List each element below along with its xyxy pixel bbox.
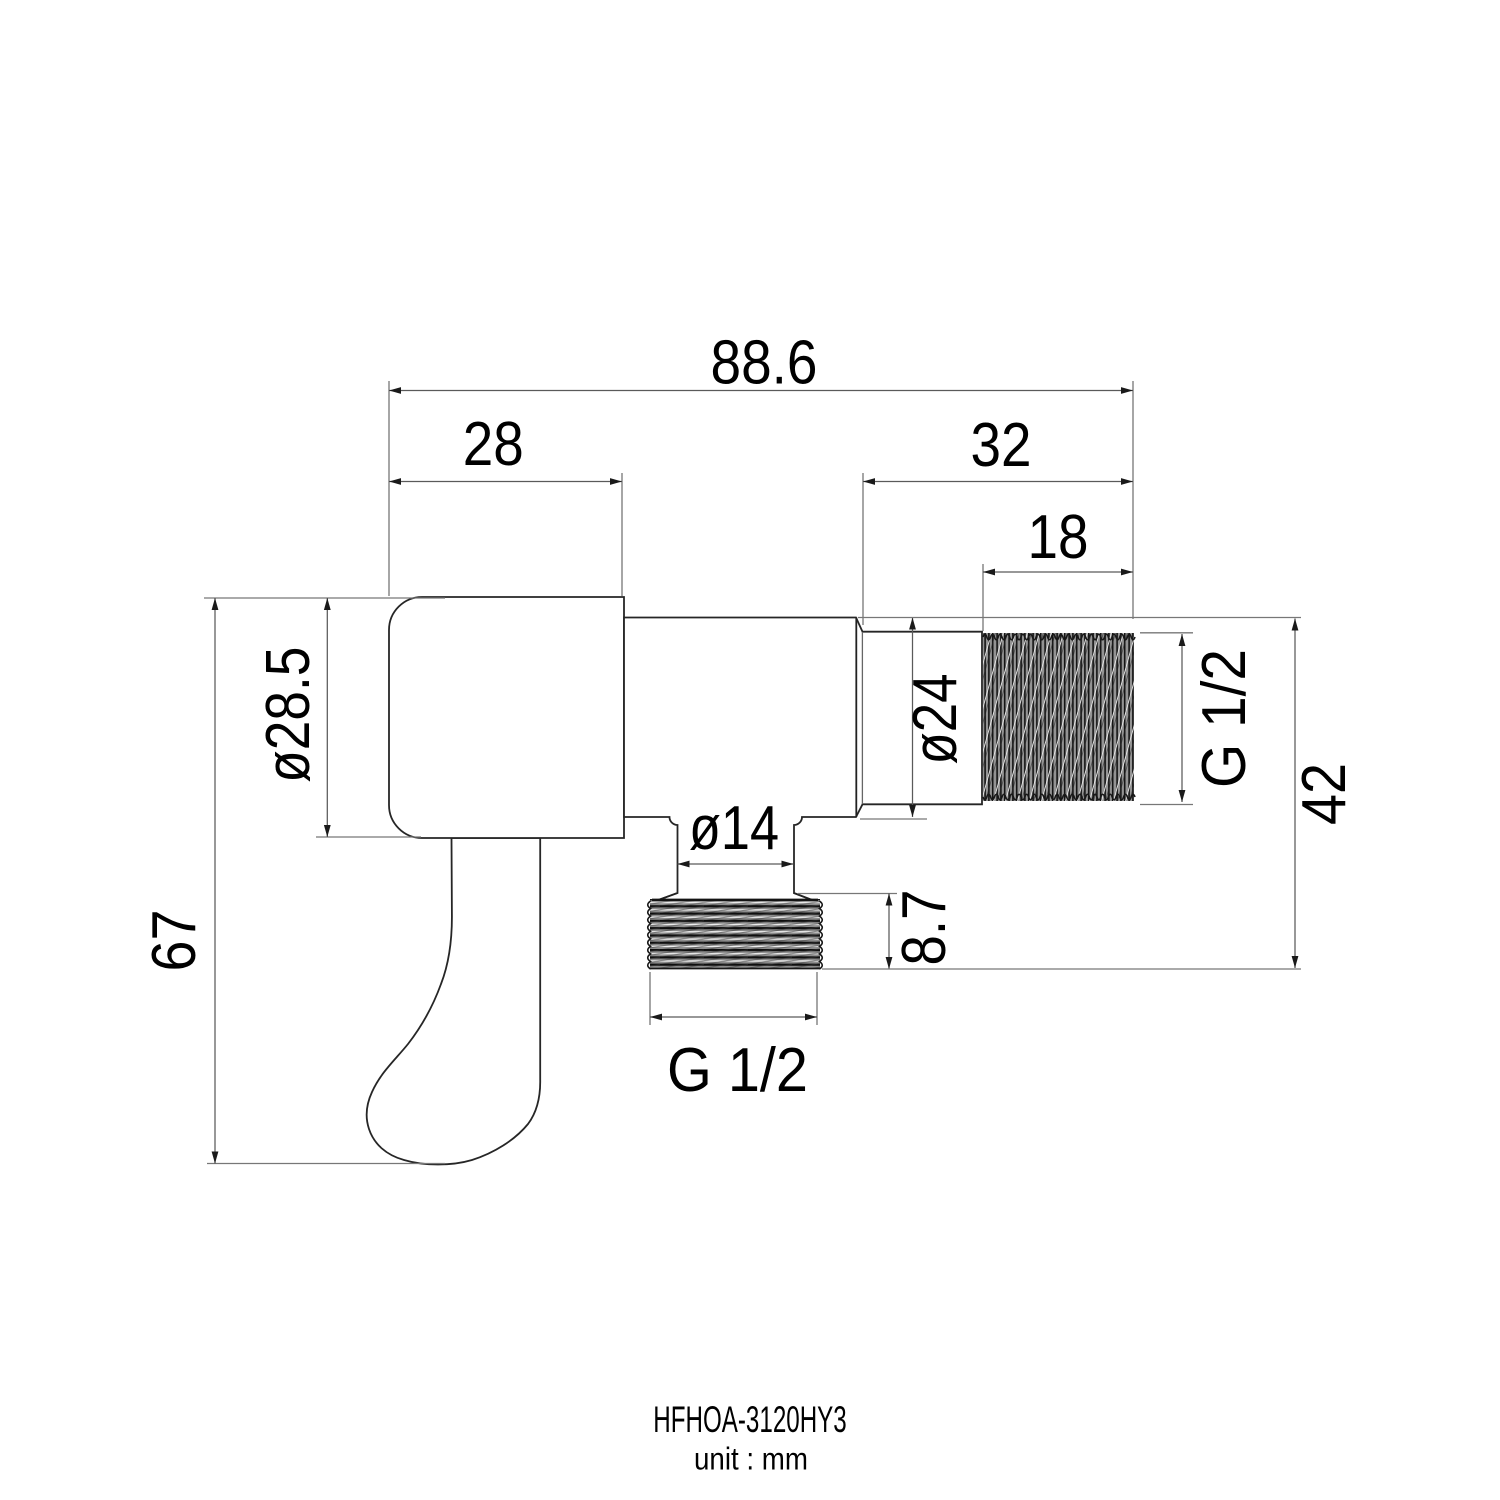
svg-text:42: 42 bbox=[1290, 763, 1359, 825]
svg-text:8.7: 8.7 bbox=[890, 890, 959, 966]
svg-text:ø24: ø24 bbox=[901, 674, 970, 765]
svg-text:18: 18 bbox=[1028, 503, 1089, 572]
svg-text:67: 67 bbox=[140, 910, 209, 972]
svg-text:ø14: ø14 bbox=[689, 794, 779, 863]
svg-text:28: 28 bbox=[463, 410, 524, 479]
svg-text:G 1/2: G 1/2 bbox=[667, 1036, 808, 1105]
svg-text:HFHOA-3120HY3: HFHOA-3120HY3 bbox=[653, 1399, 847, 1440]
svg-text:ø28.5: ø28.5 bbox=[254, 647, 323, 783]
svg-text:32: 32 bbox=[971, 411, 1032, 480]
svg-text:unit : mm: unit : mm bbox=[694, 1441, 808, 1477]
svg-text:88.6: 88.6 bbox=[711, 329, 818, 398]
svg-text:G 1/2: G 1/2 bbox=[1190, 649, 1259, 788]
